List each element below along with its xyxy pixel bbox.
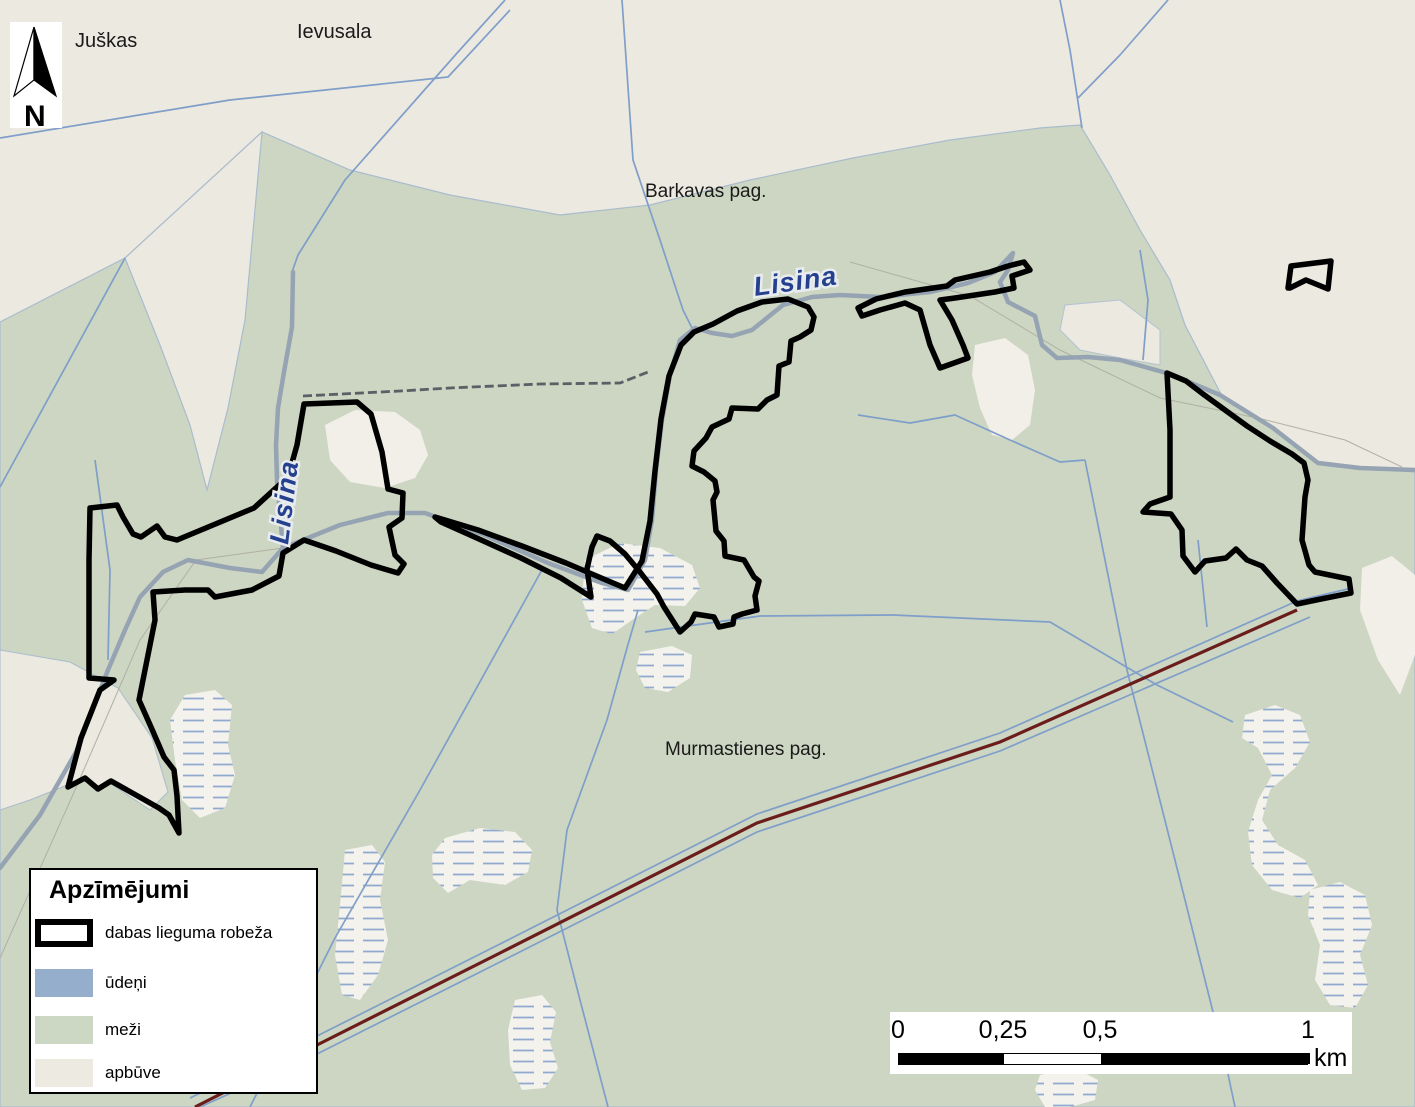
legend-item-boundary: dabas lieguma robeža (35, 918, 272, 948)
scale-tick: 0 (891, 1016, 905, 1045)
legend-panel: Apzīmējumi dabas lieguma robeža ūdeņi me… (29, 868, 318, 1094)
label-ievusala: Ievusala (297, 21, 372, 43)
legend-title: Apzīmējumi (49, 876, 189, 905)
label-barkavas-pag: Barkavas pag. (645, 181, 766, 202)
legend-item-water: ūdeņi (35, 968, 147, 998)
north-arrow: N (10, 22, 62, 133)
north-arrow-label: N (24, 100, 46, 133)
scale-tick: 1 (1301, 1016, 1315, 1045)
legend-label: dabas lieguma robeža (105, 923, 272, 943)
legend-swatch-boundary (35, 919, 93, 947)
scale-unit: km (1314, 1044, 1347, 1073)
legend-label: apbūve (105, 1063, 161, 1083)
scale-bar-segments (898, 1053, 1308, 1065)
label-juskas: Juškas (75, 30, 137, 52)
legend-swatch-builtup (35, 1059, 93, 1087)
legend-swatch-forest (35, 1016, 93, 1044)
map-view: Juškas Ievusala Barkavas pag. Murmastien… (0, 0, 1415, 1107)
legend-item-builtup: apbūve (35, 1058, 161, 1088)
legend-label: ūdeņi (105, 973, 147, 993)
legend-swatch-water (35, 969, 93, 997)
label-murmastienes-pag: Murmastienes pag. (665, 739, 827, 760)
scale-bar: 0 0,25 0,5 1 km (890, 1012, 1352, 1074)
scale-tick: 0,5 (1083, 1016, 1118, 1045)
scale-tick: 0,25 (979, 1016, 1028, 1045)
legend-item-forest: meži (35, 1015, 141, 1045)
legend-label: meži (105, 1020, 141, 1040)
